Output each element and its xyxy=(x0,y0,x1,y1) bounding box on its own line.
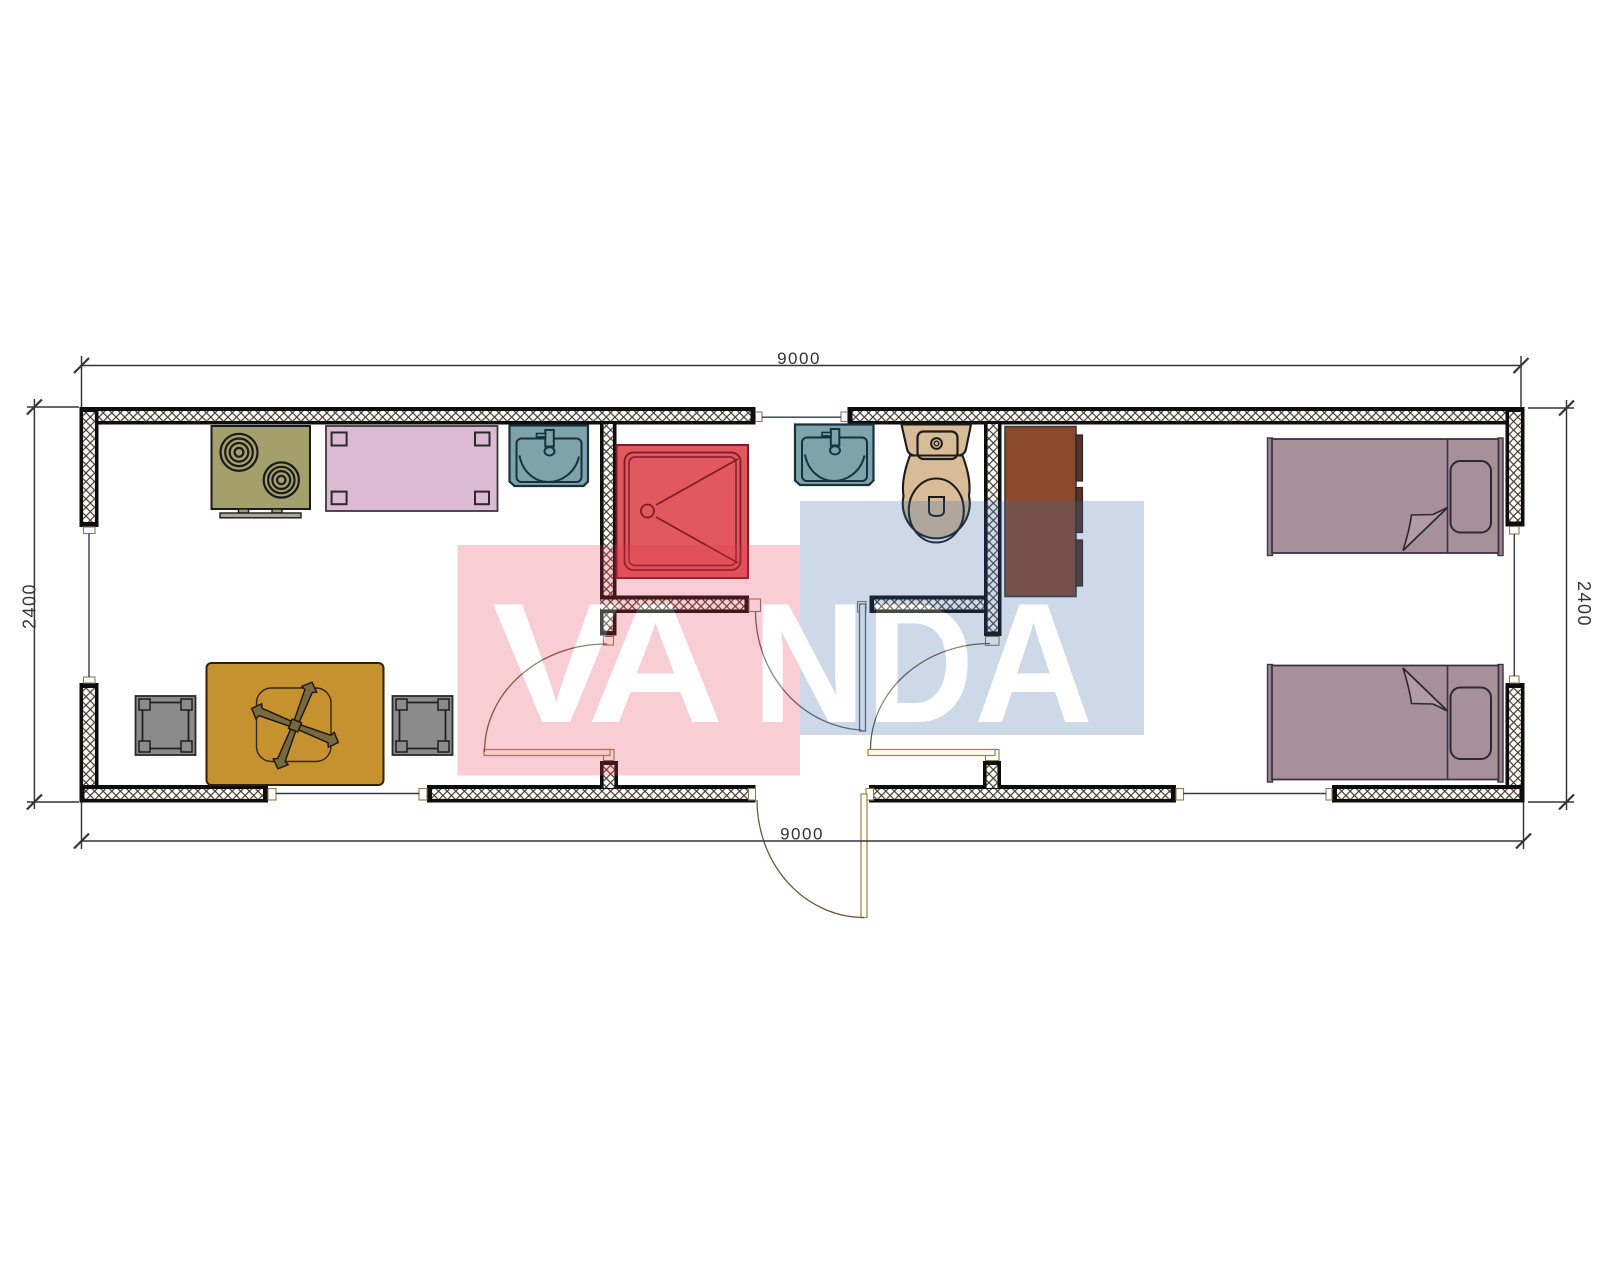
svg-text:A: A xyxy=(587,568,724,759)
svg-text:D: D xyxy=(866,568,974,759)
svg-text:9000: 9000 xyxy=(777,349,821,368)
svg-text:A: A xyxy=(974,568,1093,759)
svg-text:2400: 2400 xyxy=(1574,581,1594,627)
svg-text:2400: 2400 xyxy=(20,583,40,629)
svg-text:N: N xyxy=(752,568,866,759)
svg-text:9000: 9000 xyxy=(780,825,824,844)
